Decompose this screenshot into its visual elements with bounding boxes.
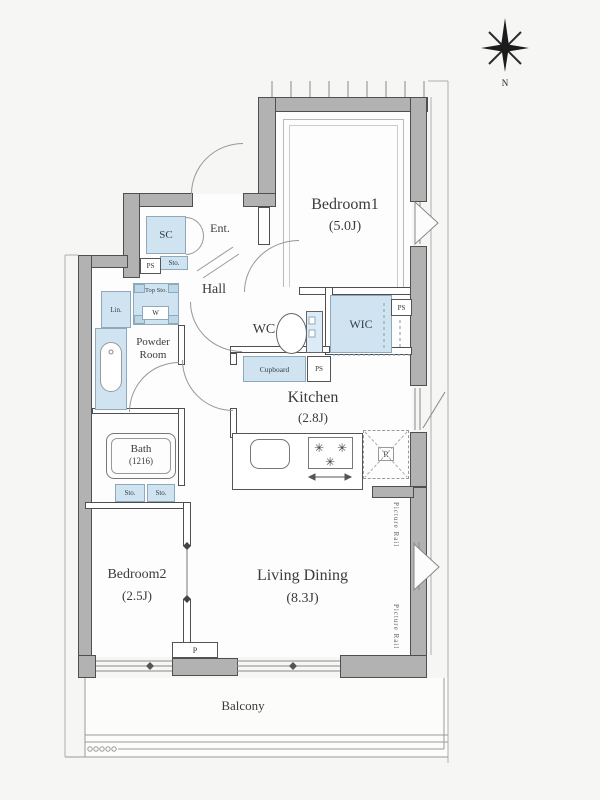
storage-box-a: Sto.: [115, 484, 145, 502]
refrigerator-chip: R: [378, 447, 394, 461]
pipe-space-label: PS: [147, 262, 155, 270]
compass-n-label: N: [493, 78, 517, 89]
wall-entrance-top-right: [243, 193, 276, 207]
wall-right-mid: [410, 246, 427, 386]
kitchen-window: [415, 388, 445, 430]
kitchen-sink: [250, 439, 290, 469]
pipe-space-kitchen: PS: [307, 356, 331, 382]
storage-box-b: Sto.: [147, 484, 175, 502]
living-balcony-window: [237, 661, 340, 671]
balcony-floor: [85, 678, 448, 757]
interior-wall-bath-right: [178, 408, 185, 486]
compass-icon: [481, 18, 529, 72]
wall-right-kitchen: [410, 432, 427, 487]
toilet-tank: [306, 311, 323, 353]
shoe-closet-box: SC: [146, 216, 186, 254]
bedroom2-size: (2.5J): [87, 588, 187, 604]
bedroom1-label: Bedroom1: [284, 195, 406, 215]
wall-bedroom1-left: [258, 97, 276, 207]
wall-pillar-block: [172, 658, 238, 676]
interior-wall-bedroom1-south: [299, 287, 411, 295]
hall-label: Hall: [192, 281, 236, 299]
boundary-ticks: [272, 81, 424, 97]
kitchen-size: (2.8J): [253, 410, 373, 426]
vanity-basin: [100, 342, 122, 392]
interior-wall-bedroom1-hall: [258, 207, 270, 245]
pipe-space-wic: PS: [391, 299, 412, 316]
bedroom1-size: (5.0J): [284, 218, 406, 236]
wall-bottom-right: [340, 655, 427, 678]
top-storage-label: Top Sto.: [145, 287, 167, 294]
picture-rail-label-upper: Picture Rail: [391, 494, 400, 556]
wic-box: WIC: [330, 295, 392, 353]
pipe-space-label: PS: [315, 365, 323, 373]
wall-bottom-left: [78, 655, 96, 678]
storage-label: Sto.: [155, 489, 166, 497]
interior-wall-bedroom2-top: [85, 502, 186, 509]
washer-tab: [168, 315, 179, 324]
entrance-label: Ent.: [200, 221, 240, 236]
washer-tab: [134, 284, 145, 293]
washer-label: W: [152, 309, 159, 317]
pillar-label: P: [193, 646, 197, 655]
wall-top: [258, 97, 428, 112]
cupboard-label: Cupboard: [260, 365, 290, 374]
bath-label: Bath: [108, 443, 174, 457]
storage-label: Sto.: [168, 259, 179, 267]
balcony-label: Balcony: [193, 698, 293, 714]
washer-tab: [168, 284, 179, 293]
pillar-chip: P: [172, 642, 218, 658]
living-dining-size: (8.3J): [230, 590, 375, 608]
bedroom2-window: [96, 661, 172, 671]
washer-box: W: [142, 306, 169, 320]
storage-label: Sto.: [124, 489, 135, 497]
linen-box: Lin.: [101, 291, 131, 328]
shoe-closet-label: SC: [159, 229, 172, 241]
wic-label: WIC: [349, 317, 372, 332]
bath-size: (1216): [108, 456, 174, 467]
wall-right-lower: [410, 487, 427, 657]
linen-label: Lin.: [110, 306, 121, 314]
refrigerator-label: R: [383, 450, 388, 459]
pipe-space-entrance: PS: [140, 258, 161, 274]
entrance-door-gap: [193, 194, 243, 208]
pipe-space-label: PS: [398, 304, 406, 312]
wc-label: WC: [246, 321, 282, 339]
wall-right-upper: [410, 97, 427, 202]
kitchen-stove: [308, 437, 353, 469]
kitchen-label: Kitchen: [253, 388, 373, 408]
powder-room-label: Powder Room: [122, 336, 184, 362]
picture-rail-label-lower: Picture Rail: [391, 596, 400, 658]
entrance-door-arc: [191, 143, 243, 194]
entrance-storage-box: Sto.: [160, 256, 188, 270]
floorplan: SC Sto. PS Lin. Top Sto. W WIC PS Cupboa…: [0, 0, 600, 800]
bedroom1-window: [415, 202, 438, 244]
interior-wall-bedroom2-right-a: [183, 502, 191, 546]
cupboard-box: Cupboard: [243, 356, 306, 382]
bedroom2-label: Bedroom2: [87, 566, 187, 584]
living-dining-label: Living Dining: [230, 566, 375, 586]
